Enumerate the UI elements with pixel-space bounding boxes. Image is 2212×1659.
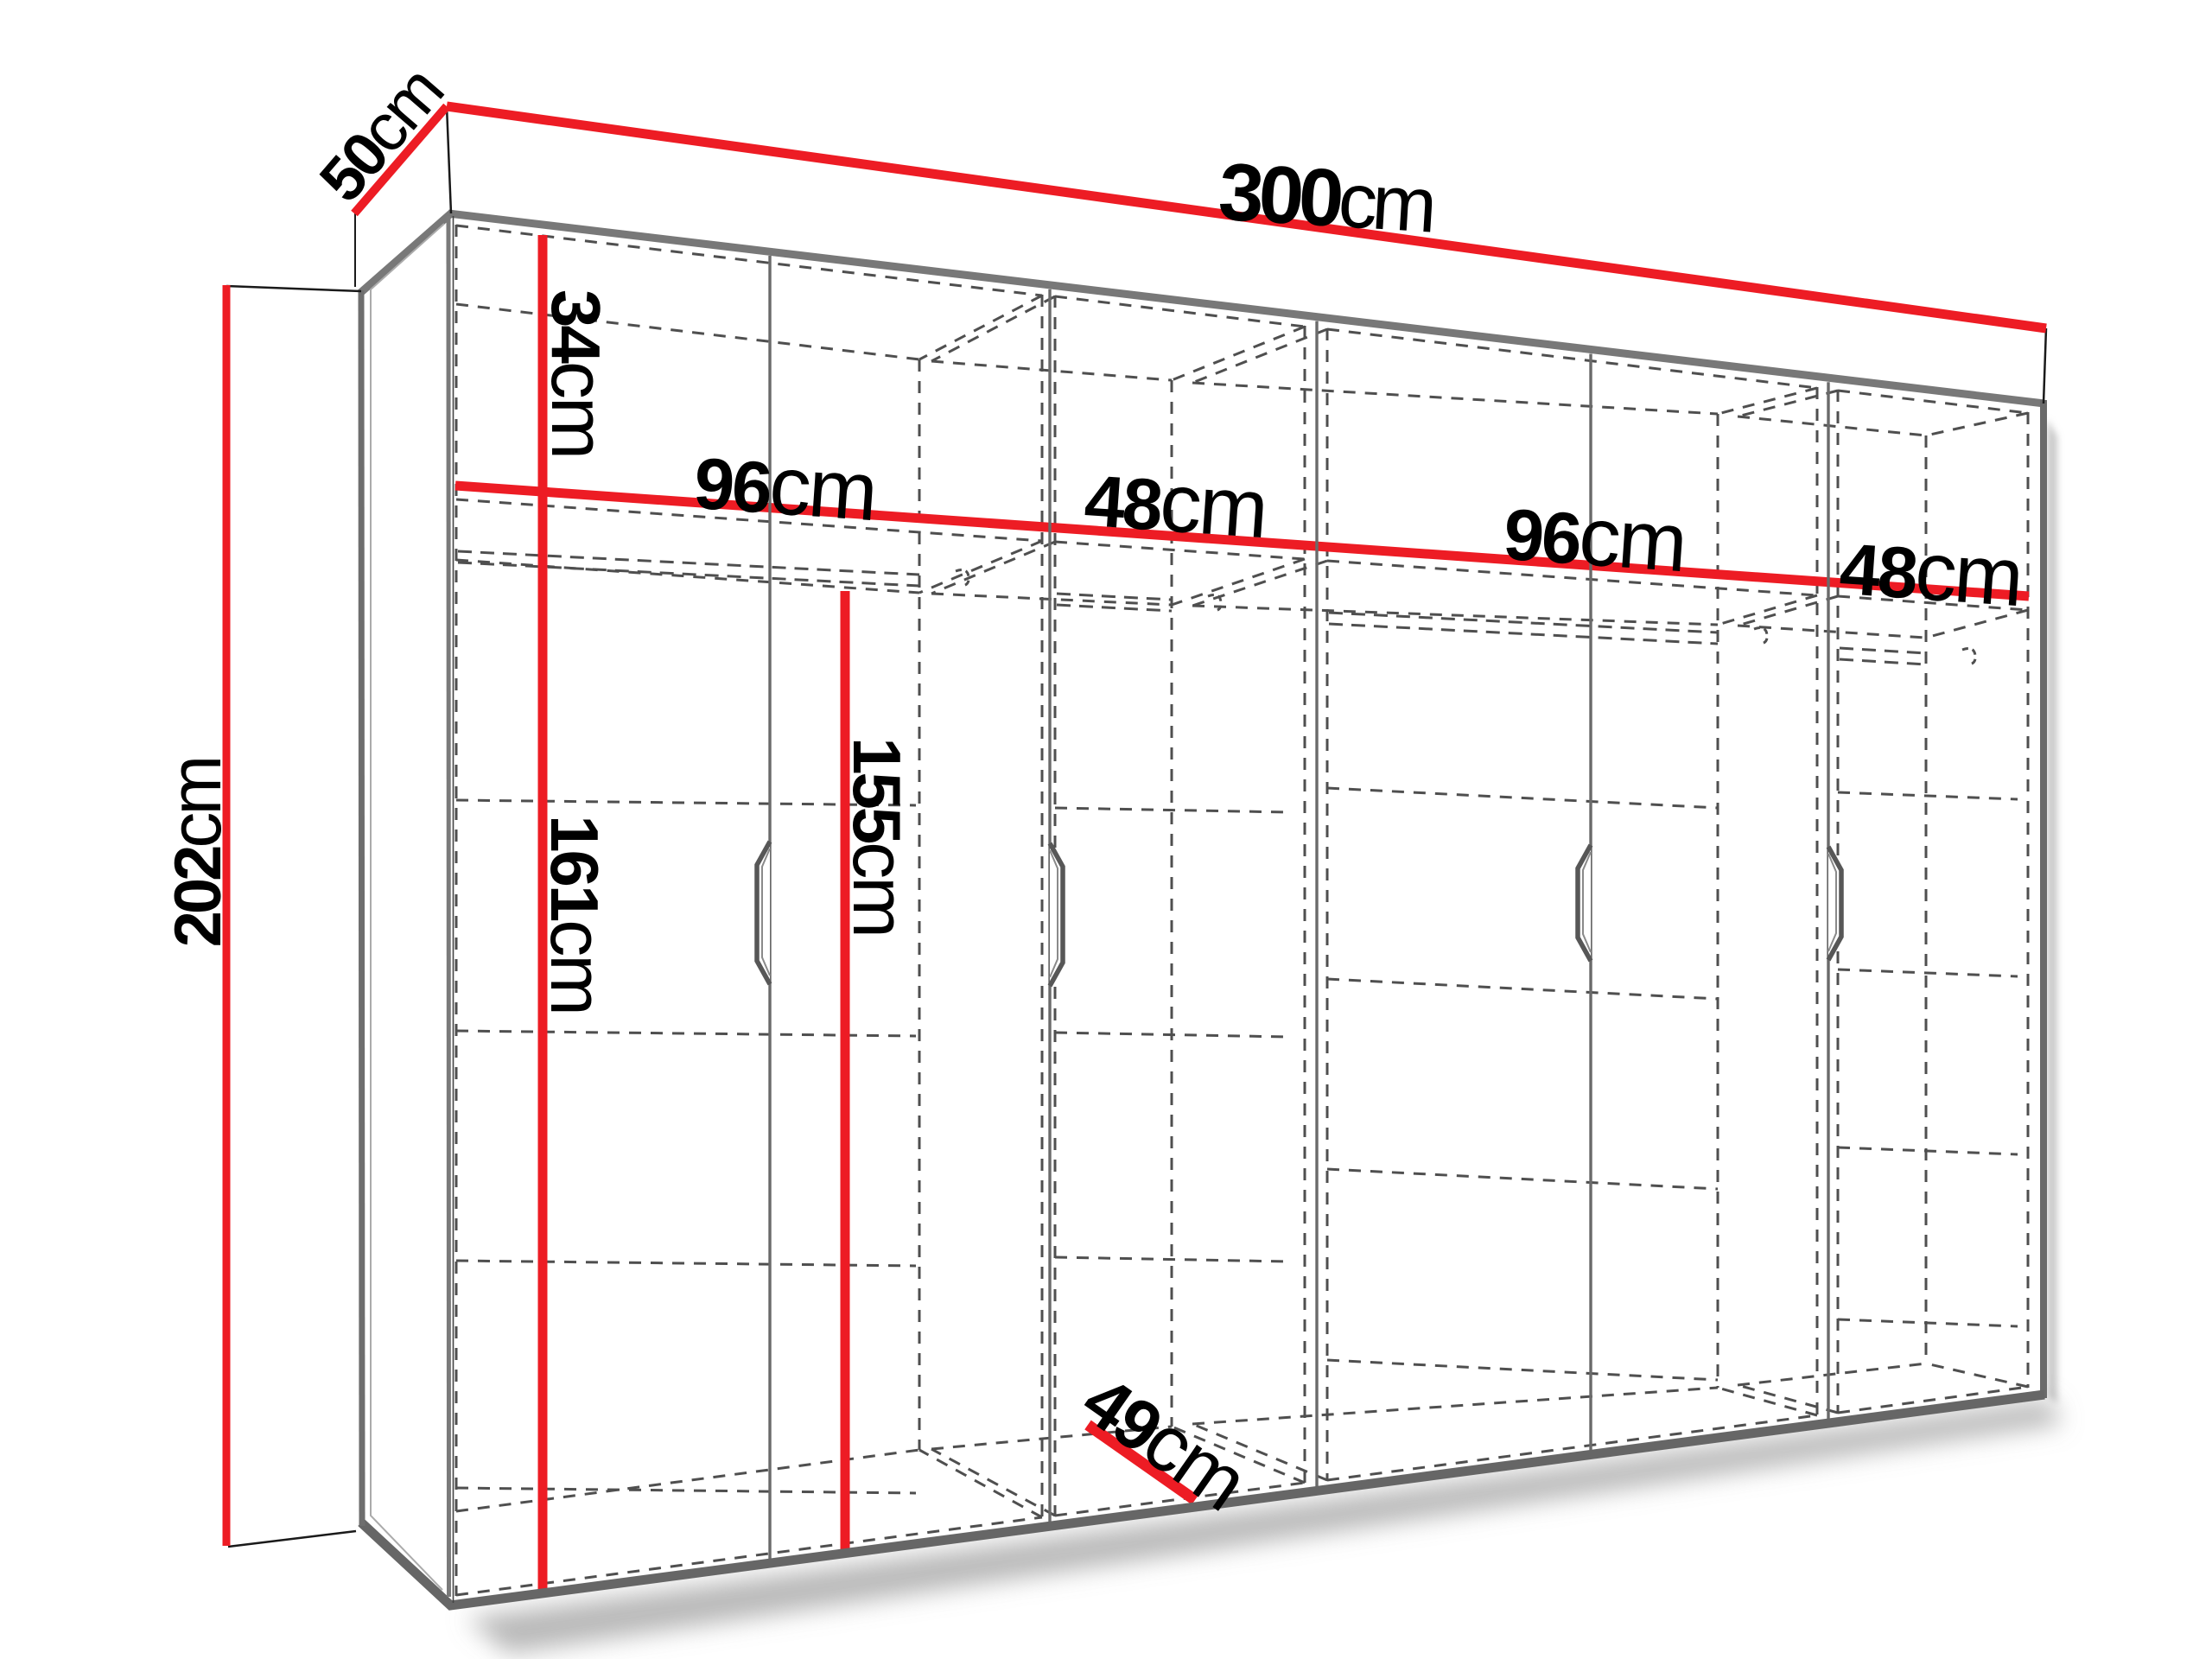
- svg-text:202cm: 202cm: [155, 759, 236, 948]
- svg-text:48cm: 48cm: [1837, 519, 2024, 624]
- svg-text:48cm: 48cm: [1082, 451, 1268, 556]
- svg-text:96cm: 96cm: [1501, 485, 1688, 589]
- svg-text:161cm: 161cm: [535, 815, 618, 1014]
- svg-text:300cm: 300cm: [1217, 146, 1436, 250]
- svg-text:34cm: 34cm: [536, 289, 621, 457]
- svg-text:96cm: 96cm: [691, 434, 878, 538]
- svg-text:155cm: 155cm: [837, 737, 920, 936]
